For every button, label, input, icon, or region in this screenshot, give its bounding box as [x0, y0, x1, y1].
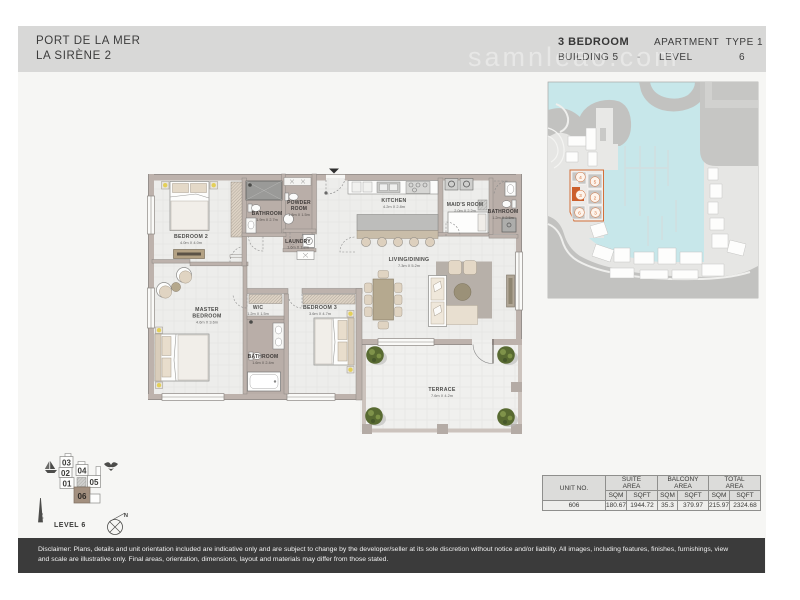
svg-text:3.6m X 4.7m: 3.6m X 4.7m [309, 311, 331, 316]
svg-text:4.0m X 4.0m: 4.0m X 4.0m [180, 240, 202, 245]
svg-text:BATHROOM: BATHROOM [488, 209, 519, 215]
svg-text:2.0m X 2.2m: 2.0m X 2.2m [454, 209, 476, 213]
svg-text:7.6m X 4.2m: 7.6m X 4.2m [431, 393, 453, 398]
svg-text:BATHROOM: BATHROOM [248, 354, 279, 360]
svg-text:06: 06 [78, 492, 87, 501]
svg-text:W/C: W/C [253, 305, 264, 311]
svg-text:BATHROOM: BATHROOM [252, 211, 283, 217]
svg-text:1.6m X 1.2m: 1.6m X 1.2m [287, 246, 309, 250]
svg-text:02: 02 [61, 469, 70, 478]
svg-text:6: 6 [578, 211, 581, 217]
svg-text:MASTER: MASTER [195, 307, 219, 313]
svg-text:ROOM: ROOM [291, 206, 307, 212]
svg-text:4.6m X 3.6m: 4.6m X 3.6m [196, 320, 218, 325]
svg-text:MAID'S ROOM: MAID'S ROOM [447, 202, 483, 208]
svg-text:4.2m X 2.8m: 4.2m X 2.8m [383, 204, 405, 209]
svg-text:N: N [124, 513, 128, 519]
svg-text:04: 04 [78, 467, 87, 476]
svg-text:2: 2 [594, 196, 597, 202]
svg-text:1.6m X 2.4m: 1.6m X 2.4m [252, 361, 274, 365]
svg-text:05: 05 [90, 478, 99, 487]
svg-text:1.9m X 2.7m: 1.9m X 2.7m [256, 218, 278, 222]
svg-text:3: 3 [594, 211, 597, 217]
svg-text:3: 3 [579, 193, 582, 199]
svg-text:4: 4 [579, 175, 582, 181]
svg-text:1.2m X 1.5m: 1.2m X 1.5m [247, 312, 269, 316]
svg-text:7.3m X 5.2m: 7.3m X 5.2m [398, 263, 420, 268]
svg-text:LAUNDRY: LAUNDRY [285, 239, 311, 245]
svg-text:01: 01 [63, 480, 72, 489]
svg-text:5: 5 [594, 180, 597, 186]
svg-text:1.8m X 1.5m: 1.8m X 1.5m [288, 213, 310, 217]
svg-text:LEVEL 6: LEVEL 6 [54, 522, 86, 529]
svg-text:1.2m X 2.5m: 1.2m X 2.5m [492, 216, 514, 220]
svg-text:03: 03 [62, 459, 71, 468]
